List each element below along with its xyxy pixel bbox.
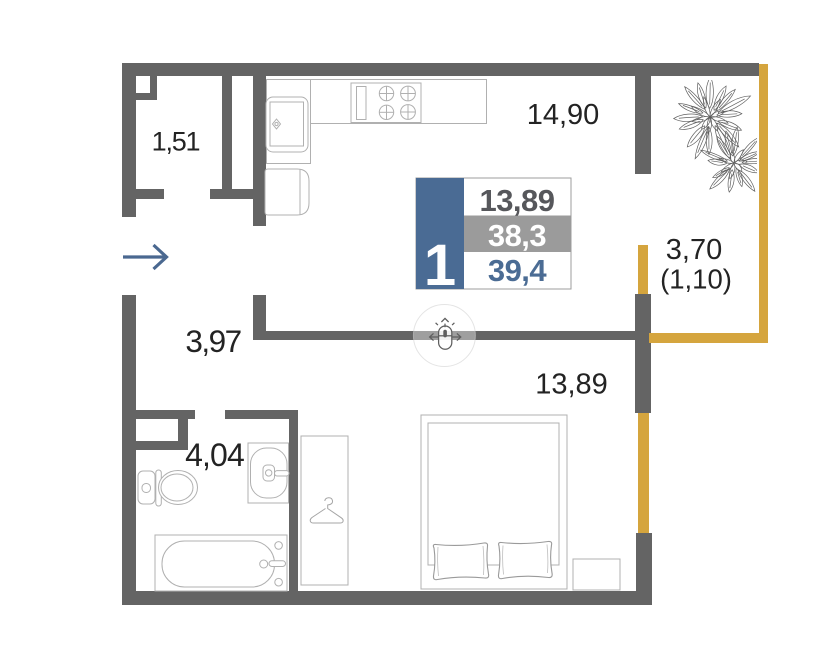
svg-text:13,89: 13,89 [535,369,608,401]
svg-text:14,90: 14,90 [527,99,600,131]
svg-text:3,70: 3,70 [666,234,722,266]
svg-text:39,4: 39,4 [488,253,548,288]
svg-text:13,89: 13,89 [479,183,554,218]
svg-text:1: 1 [424,233,456,298]
svg-text:3,97: 3,97 [185,323,240,359]
svg-text:38,3: 38,3 [488,218,547,253]
svg-text:4,04: 4,04 [185,437,244,473]
svg-text:1,51: 1,51 [152,127,200,157]
svg-text:(1,10): (1,10) [660,264,732,295]
